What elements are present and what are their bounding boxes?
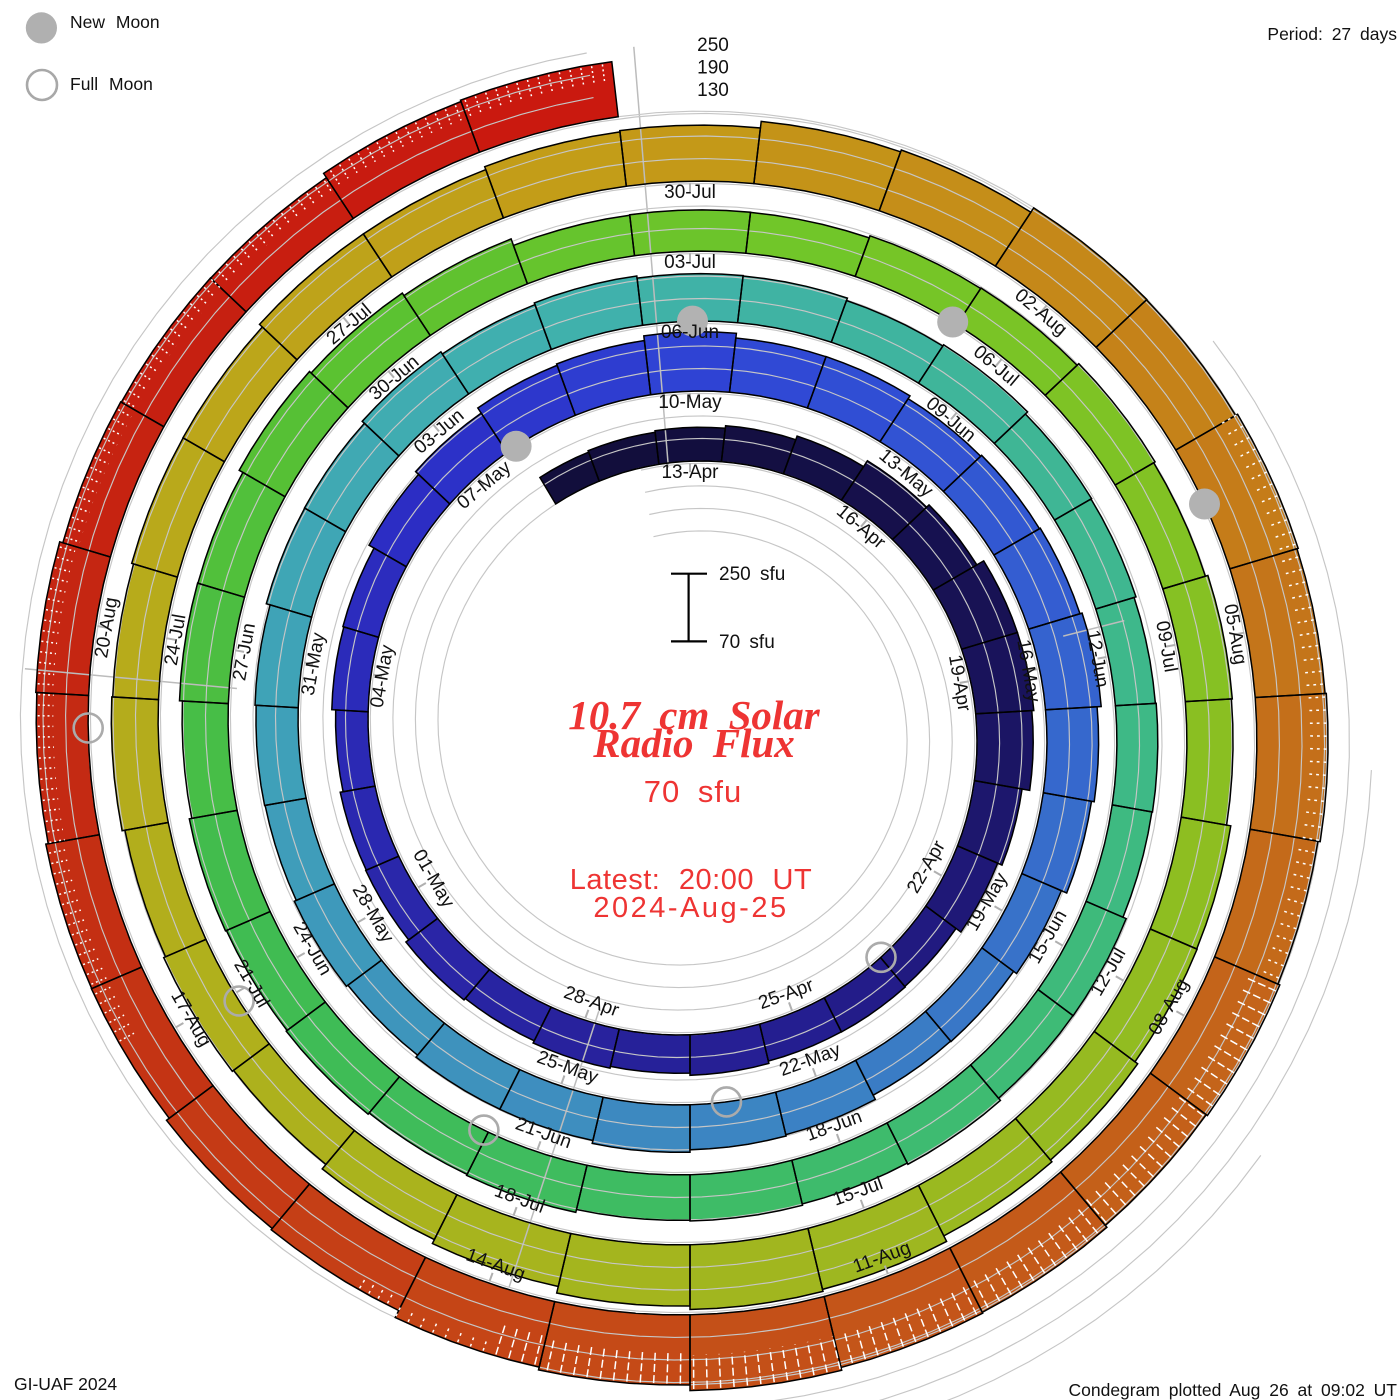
svg-text:06-Jun: 06-Jun [661,322,719,343]
svg-text:30-Jul: 30-Jul [664,182,716,203]
svg-text:130: 130 [697,80,729,101]
svg-text:13-Apr: 13-Apr [661,462,719,483]
svg-text:70 sfu: 70 sfu [644,774,742,809]
svg-text:Radio Flux: Radio Flux [592,720,795,766]
svg-text:250: 250 [697,35,729,56]
svg-text:2024-Aug-25: 2024-Aug-25 [593,892,788,924]
svg-text:Period: 27 days: Period: 27 days [1267,24,1397,44]
svg-text:Condegram plotted Aug 26 at 09: Condegram plotted Aug 26 at 09:02 UT [1068,1380,1397,1400]
svg-text:10-May: 10-May [658,392,722,413]
svg-text:Full Moon: Full Moon [70,74,153,94]
svg-text:03-Jul: 03-Jul [664,252,716,273]
svg-text:250 sfu: 250 sfu [719,564,785,585]
svg-text:GI-UAF 2024: GI-UAF 2024 [14,1374,117,1394]
svg-text:70 sfu: 70 sfu [719,632,775,653]
svg-text:190: 190 [697,57,729,78]
svg-text:New Moon: New Moon [70,12,160,32]
